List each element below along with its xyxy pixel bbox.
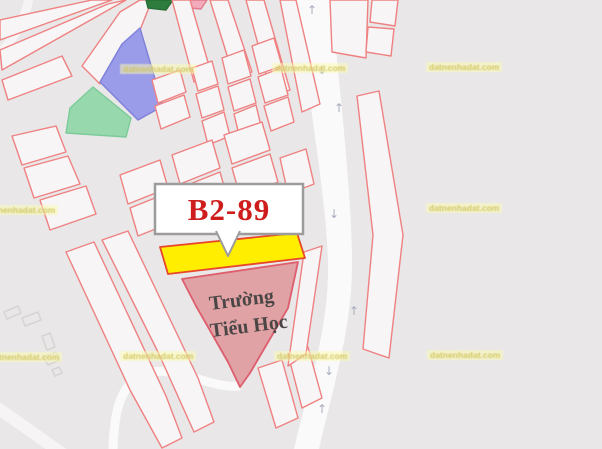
direction-arrow-icon: ↓ [324, 364, 334, 378]
plot-label-text: B2-89 [188, 192, 271, 227]
direction-arrow-icon: ↑ [317, 402, 327, 416]
direction-arrow-icon: ↑ [349, 304, 359, 318]
parcel[interactable] [330, 0, 368, 58]
direction-arrow-icon: ↓ [329, 207, 339, 221]
map-svg: Trường Tiểu Học B2-89 ↑↓↑↓↑↓↑ [0, 0, 602, 449]
direction-arrow-icon: ↓ [317, 63, 327, 77]
parcel[interactable] [370, 0, 398, 26]
direction-arrow-icon: ↑ [334, 101, 344, 115]
direction-arrow-icon: ↑ [307, 3, 317, 17]
map-canvas[interactable]: Trường Tiểu Học B2-89 ↑↓↑↓↑↓↑ datnenhada… [0, 0, 602, 449]
parcel[interactable] [366, 27, 394, 56]
